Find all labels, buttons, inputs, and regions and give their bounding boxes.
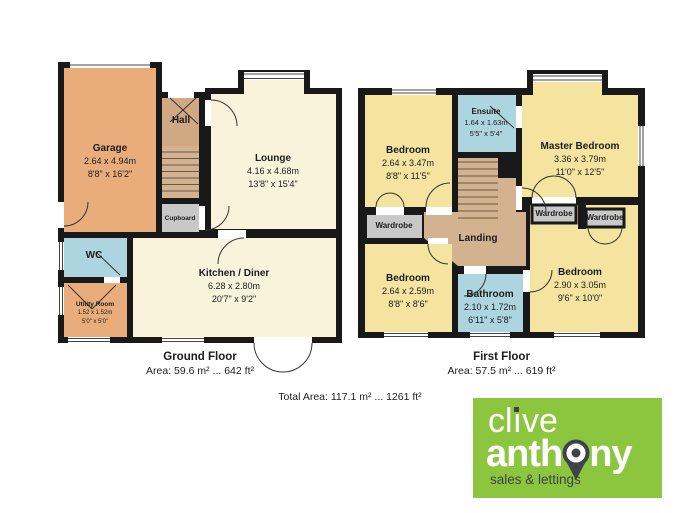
clive-anthony-logo: clıve anthny sales & lettings — [473, 398, 662, 498]
landing-corridor — [498, 178, 516, 214]
stairs-cupboard-wall — [162, 198, 199, 204]
room-bedroom-top-left — [365, 95, 452, 207]
floorplan-page: Garage 2.64 x 4.94m 8'8" x 16'2" Hall Lo… — [0, 0, 700, 513]
first-floor-drawing — [358, 66, 645, 340]
room-lounge — [211, 94, 336, 229]
room-kitchen-diner — [133, 238, 336, 337]
room-garage — [64, 68, 156, 232]
first-floor-plan: Bedroom 2.64 x 3.47m 8'8" x 11'5" Ensuit… — [358, 66, 645, 340]
ground-floor-caption: Ground Floor Area: 59.6 m² ... 642 ft² — [58, 350, 342, 378]
room-hall — [162, 98, 199, 146]
room-cupboard — [162, 204, 199, 232]
first-floor-caption: First Floor Area: 57.5 m² ... 619 ft² — [358, 350, 645, 378]
ground-floor-drawing — [58, 56, 342, 378]
room-wc — [64, 238, 127, 277]
room-wardrobe-right — [586, 209, 624, 227]
room-wardrobe-left — [367, 215, 422, 238]
room-bathroom — [458, 274, 523, 332]
master-bay — [533, 81, 602, 97]
room-wardrobe-middle — [532, 205, 576, 223]
room-bedroom-bottom-left — [365, 244, 452, 332]
room-ensuite — [458, 95, 516, 152]
ground-floor-plan: Garage 2.64 x 4.94m 8'8" x 16'2" Hall Lo… — [58, 56, 342, 378]
logo-tagline: sales & lettings — [490, 472, 581, 487]
